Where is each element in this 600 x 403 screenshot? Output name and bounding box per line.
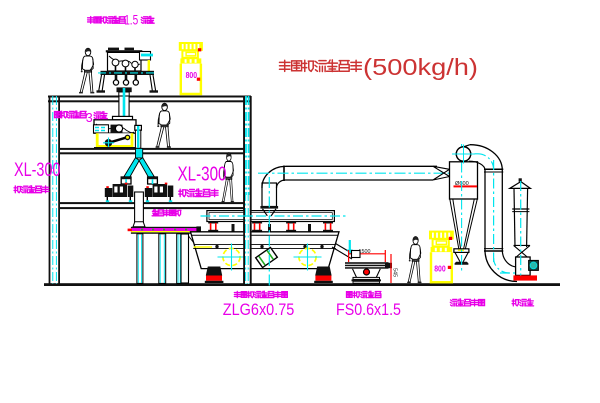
svg-text:ZLG6x0.75: ZLG6x0.75 [223, 301, 294, 319]
svg-text:XL-300: XL-300 [178, 164, 227, 186]
svg-text:3: 3 [86, 111, 93, 125]
svg-text:1.5: 1.5 [124, 13, 138, 28]
svg-text:800: 800 [434, 265, 446, 274]
svg-text:(500kg/h): (500kg/h) [363, 54, 478, 80]
svg-text:FS0.6x1.5: FS0.6x1.5 [336, 301, 401, 319]
svg-text:800: 800 [186, 71, 198, 80]
svg-text:XL-300: XL-300 [14, 160, 61, 181]
svg-text:545: 545 [392, 268, 398, 277]
